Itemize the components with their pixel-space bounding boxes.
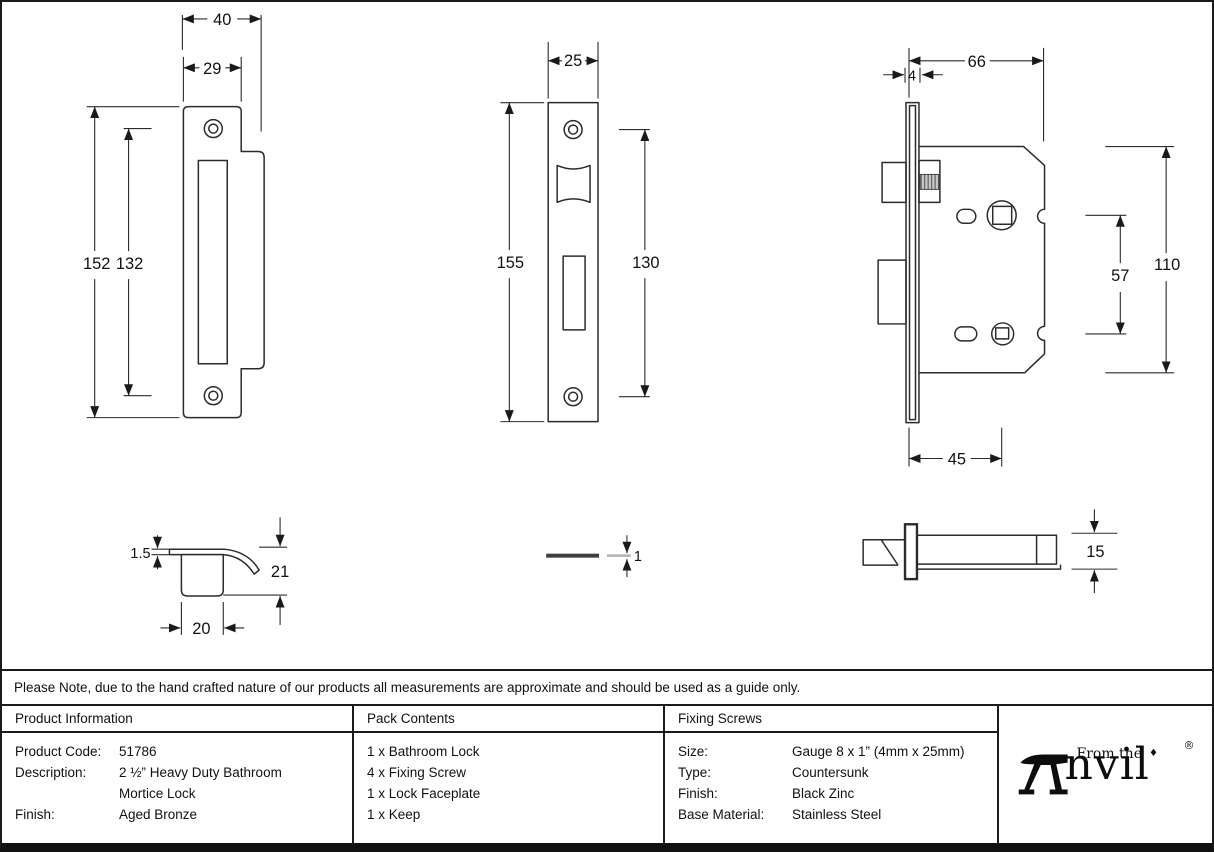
dim-label-15: 15 [1086,543,1104,561]
keep-cutout [198,160,227,363]
spec-row: Base Material: Stainless Steel [678,804,984,825]
latch-cutout [557,165,590,202]
dim-case-thickness: 15 [1071,509,1117,593]
spec-value: Black Zinc [792,783,854,804]
keep-box [181,555,223,596]
from-the-anvil-logo: nvil From the♦ ® [1017,743,1195,807]
body-faceplate [906,103,919,423]
dim-label-155: 155 [497,254,524,272]
datasheet-page: 40 29 152 132 [0,0,1214,852]
dim-faceplate-hole-spacing: 130 [619,130,660,397]
spec-label: Description: [15,762,119,783]
dim-faceplate-height: 155 [497,103,545,422]
fixing-screws-header: Fixing Screws [665,706,997,733]
case-plan [917,535,1057,564]
dim-label-66: 66 [968,53,986,71]
dim-backset: 45 [909,428,1002,469]
screw-hole [204,387,222,405]
spec-value: 2 ½” Heavy Duty Bathroom [119,762,282,783]
latch-hatch [920,174,939,189]
dim-label-130: 130 [632,254,659,272]
dim-keep-width-plate: 29 [183,57,241,102]
dim-case-width: 66 [909,48,1044,142]
lock-faceplate-drawing: 25 155 130 [497,42,660,422]
dim-keep-box-width: 20 [160,602,244,638]
product-information-column: Product Information Product Code: 51786 … [2,706,354,843]
spec-label: Base Material: [678,804,792,825]
faceplate-edge-drawing: 1 [546,535,642,577]
pack-item: 1 x Bathroom Lock [367,741,650,762]
spec-label: Type: [678,762,792,783]
keep-side-drawing: 1.5 21 20 [130,517,289,638]
diamond-icon: ♦ [1149,748,1158,759]
registered-trademark: ® [1184,739,1195,752]
pack-item: 1 x Lock Faceplate [367,783,650,804]
spec-value: 51786 [119,741,157,762]
spec-row: Size: Gauge 8 x 1” (4mm x 25mm) [678,741,984,762]
dim-label-21: 21 [271,563,289,581]
brand-column: nvil From the♦ ® [999,706,1212,843]
spec-row: Description: 2 ½” Heavy Duty Bathroom [15,762,339,783]
pack-item: 4 x Fixing Screw [367,762,650,783]
faceplate-outline [548,103,598,422]
measurement-note: Please Note, due to the hand crafted nat… [2,669,1212,706]
spec-label: Finish: [15,804,119,825]
dim-label-152: 152 [83,255,110,273]
spec-label: Product Code: [15,741,119,762]
dim-keep-hole-spacing: 132 [116,129,152,396]
pack-contents-header: Pack Contents [354,706,663,733]
bolt-cutout [563,256,585,330]
keep-front-drawing: 40 29 152 132 [83,11,264,418]
product-info-table: Product Information Product Code: 51786 … [2,706,1212,843]
latch-bolt [882,162,906,202]
anvil-icon [1017,752,1071,796]
pack-contents-body: 1 x Bathroom Lock 4 x Fixing Screw 1 x L… [354,733,663,825]
spec-value: Mortice Lock [119,783,196,804]
dim-keep-plate-thickness: 1.5 [130,535,169,569]
dim-label-4: 4 [908,69,916,85]
dim-label-20: 20 [192,620,210,638]
oval-hole [957,209,976,223]
keep-plate-outline [183,107,264,418]
dim-follower-spacing: 57 [1085,215,1129,334]
spec-value: Gauge 8 x 1” (4mm x 25mm) [792,741,965,762]
logo-wordmark: nvil [1065,735,1150,795]
spec-label: Size: [678,741,792,762]
logo-tagline: From the♦ [1077,746,1158,762]
spec-value: Stainless Steel [792,804,881,825]
dim-label-29: 29 [203,60,221,78]
dim-label-40: 40 [213,11,231,29]
spec-value: Aged Bronze [119,804,197,825]
lock-body-drawing: 66 4 110 57 45 [878,48,1180,469]
lock-plan-drawing: 15 [863,509,1117,593]
dim-label-45: 45 [948,450,966,468]
oval-hole [955,327,977,341]
spec-value: Countersunk [792,762,869,783]
dim-label-1-5: 1.5 [130,546,150,562]
product-information-header: Product Information [2,706,352,733]
screw-hole [204,120,222,138]
dim-label-132: 132 [116,255,143,273]
screw-hole [564,121,582,139]
screw-hole [564,388,582,406]
dim-label-57: 57 [1111,267,1129,285]
technical-drawings: 40 29 152 132 [2,2,1212,669]
measurement-note-text: Please Note, due to the hand crafted nat… [14,680,800,695]
pack-item: 1 x Keep [367,804,650,825]
fixing-screws-body: Size: Gauge 8 x 1” (4mm x 25mm) Type: Co… [665,733,997,825]
dim-faceplate-width: 25 [548,42,598,99]
dim-label-25: 25 [564,52,582,70]
pack-contents-column: Pack Contents 1 x Bathroom Lock 4 x Fixi… [354,706,665,843]
dim-case-height: 110 [1105,147,1180,373]
faceplate-plan [905,524,917,579]
spec-row: Product Code: 51786 [15,741,339,762]
dim-plate-thickness: 4 [883,68,943,85]
fixing-screws-column: Fixing Screws Size: Gauge 8 x 1” (4mm x … [665,706,999,843]
spec-label: Finish: [678,783,792,804]
product-information-body: Product Code: 51786 Description: 2 ½” He… [2,733,352,825]
spec-row: Type: Countersunk [678,762,984,783]
dead-bolt [878,260,906,324]
dim-label-110: 110 [1154,256,1180,274]
faceplate-edge [546,554,599,558]
spec-row: Mortice Lock [15,783,339,804]
dim-keep-width-overall: 40 [182,11,261,132]
latch-bolt-plan [863,540,906,565]
spec-row: Finish: Black Zinc [678,783,984,804]
dim-label-1: 1 [634,549,642,565]
spec-row: Finish: Aged Bronze [15,804,339,825]
spec-label [15,783,119,804]
